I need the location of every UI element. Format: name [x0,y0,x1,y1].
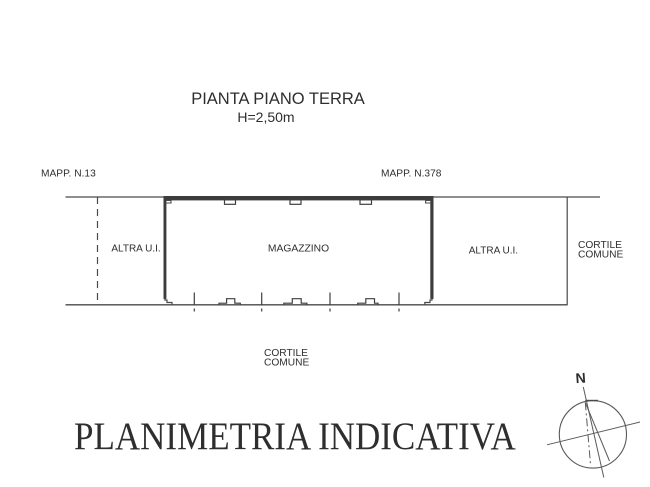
svg-text:MAPP. N.378: MAPP. N.378 [381,169,442,180]
svg-text:COMUNE: COMUNE [578,250,623,261]
svg-text:N: N [575,371,586,388]
svg-text:ALTRA U.I.: ALTRA U.I. [469,246,518,257]
svg-text:ALTRA U.I.: ALTRA U.I. [111,244,160,255]
svg-text:MAPP. N.13: MAPP. N.13 [41,169,96,180]
svg-text:PLANIMETRIA INDICATIVA: PLANIMETRIA INDICATIVA [74,415,516,458]
svg-text:H=2,50m: H=2,50m [237,109,294,125]
svg-text:PIANTA PIANO TERRA: PIANTA PIANO TERRA [191,90,365,108]
svg-text:MAGAZZINO: MAGAZZINO [268,244,329,255]
svg-text:COMUNE: COMUNE [264,358,309,369]
